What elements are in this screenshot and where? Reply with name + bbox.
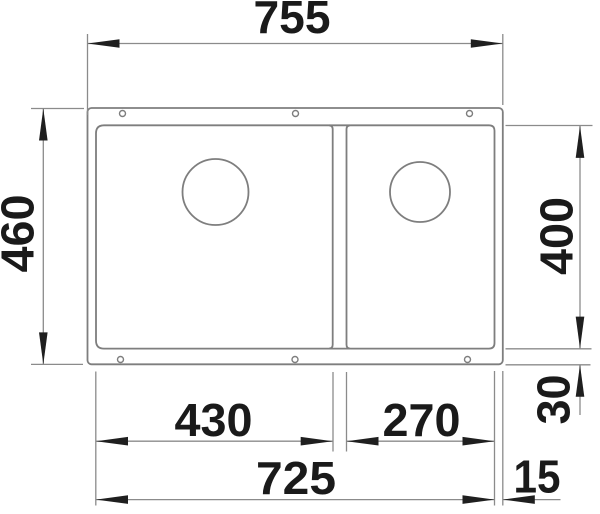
svg-text:460: 460 [0,195,44,273]
svg-text:755: 755 [254,0,331,43]
svg-text:725: 725 [256,452,336,504]
svg-text:430: 430 [175,394,253,446]
svg-text:270: 270 [383,394,461,446]
svg-text:400: 400 [531,197,583,275]
svg-text:30: 30 [528,375,580,425]
svg-text:15: 15 [514,451,561,503]
